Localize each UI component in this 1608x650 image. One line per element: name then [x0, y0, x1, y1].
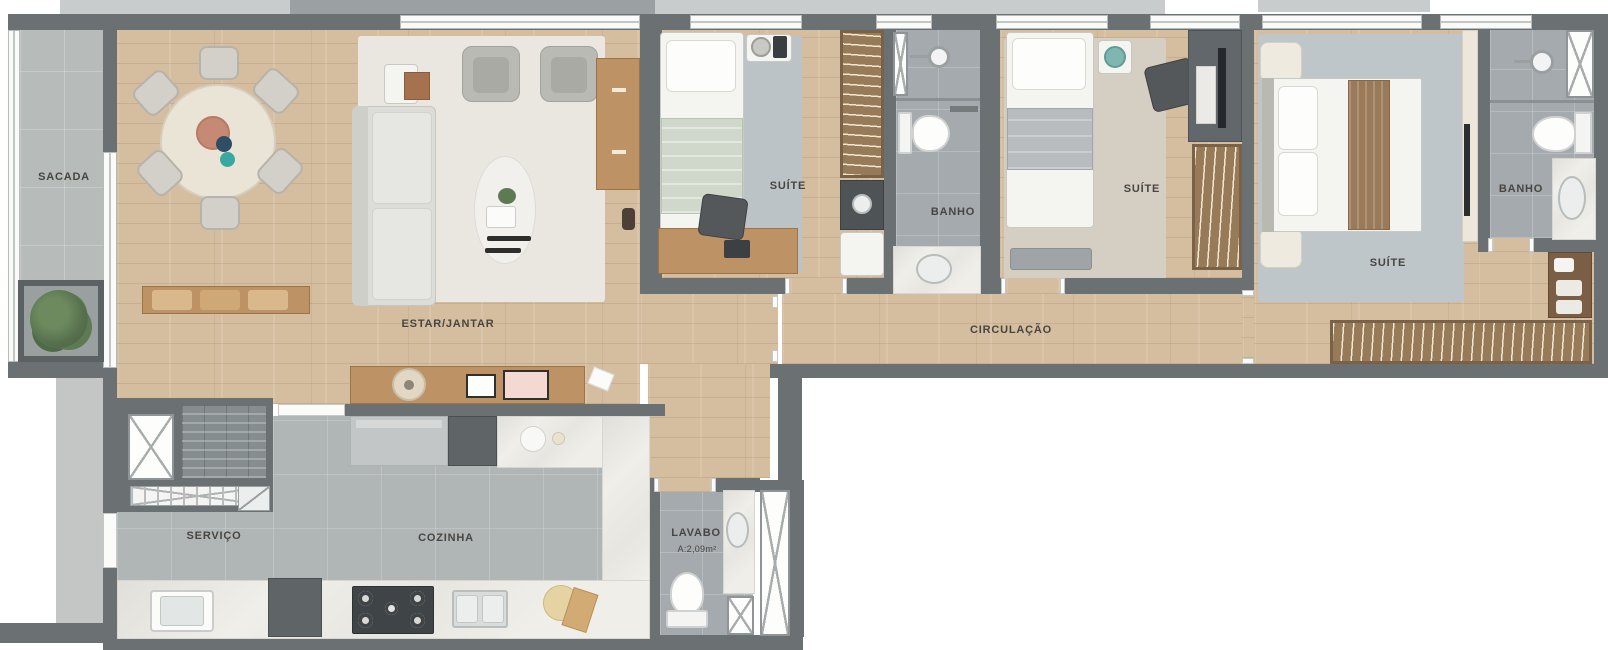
dining-chair: [200, 196, 240, 230]
wall-kitchen-top: [345, 404, 665, 416]
coffee-items: [1556, 300, 1582, 314]
toilet-lavabo-bowl: [670, 572, 704, 614]
bench-cushion: [200, 290, 240, 310]
balcony-glass-door: [103, 152, 117, 368]
bench-cushion: [152, 290, 192, 310]
coffee-table-remote: [487, 236, 531, 241]
door-post: [1001, 278, 1006, 294]
desk-suite2: [1196, 66, 1216, 124]
door-post: [1488, 238, 1493, 252]
nightstand-master: [1260, 228, 1302, 268]
coffee-items: [1554, 258, 1574, 272]
lamp-teal-suite2: [1104, 46, 1126, 68]
wall-duct-cap: [760, 480, 790, 490]
wall-bottom-left-stub: [0, 623, 103, 643]
door-post: [772, 296, 778, 308]
bed-suite2-blanket: [1007, 108, 1093, 170]
dining-decor-blue: [216, 136, 232, 152]
shower-head-banho2: [1530, 50, 1554, 74]
shower-arm-banho1: [910, 55, 930, 58]
door-gap-banho2: [1492, 238, 1530, 252]
exterior-band: [60, 0, 290, 14]
drying-rack: [238, 486, 270, 511]
toilet-banho2-tank: [1574, 112, 1592, 154]
door-gap-lavabo: [658, 478, 712, 492]
shower-door-banho2: [1566, 30, 1594, 98]
door-post: [772, 350, 778, 362]
wall-master-banho2: [1478, 14, 1490, 238]
door-gap-suite1: [790, 278, 842, 294]
bed-master-pillow: [1278, 152, 1318, 216]
cabinet-suite1: [840, 232, 884, 276]
door-post: [1242, 358, 1254, 364]
burner: [410, 613, 425, 628]
floor-plan: SACADA ESTAR/JANTAR SERVIÇO COZINHA LAVA…: [0, 0, 1608, 650]
vanity-basin-banho2: [1558, 176, 1586, 220]
common-corridor-strip: [56, 378, 104, 625]
room-label-estar-jantar: ESTAR/JANTAR: [402, 318, 495, 330]
door-post: [785, 278, 790, 294]
room-label-banho-master: BANHO: [1499, 183, 1543, 195]
wall-balcony-top: [8, 14, 103, 30]
window-suite2-desk: [1150, 15, 1240, 29]
wall-balcony-living-a: [103, 30, 117, 152]
plant: [30, 290, 88, 348]
tv-master: [1464, 124, 1470, 216]
core-textured-wall: [182, 406, 266, 478]
wall-servico-left-b: [103, 568, 117, 635]
burner: [358, 613, 373, 628]
bed-master-runner: [1348, 80, 1390, 230]
door-post: [842, 278, 847, 294]
window-master: [1262, 15, 1422, 29]
sofa-back: [352, 106, 368, 306]
shower-head-banho1: [928, 46, 950, 68]
exterior-band: [1258, 0, 1430, 12]
room-label-circulacao: CIRCULAÇÃO: [970, 324, 1052, 336]
coffee-table-remote: [485, 248, 521, 253]
toilet-lavabo-tank: [666, 610, 708, 628]
lavabo-basin: [726, 512, 749, 548]
wall-hall-right: [778, 378, 802, 490]
wall-duct-right: [790, 480, 804, 637]
console-tray-center: [404, 380, 414, 390]
door-post: [1242, 290, 1254, 296]
kitchen-door-opening: [278, 404, 345, 416]
picture-frame-small: [466, 374, 496, 398]
room-label-suite1: SUÍTE: [770, 180, 806, 192]
room-area-lavabo: A:2,09m²: [678, 544, 717, 554]
shower-divider-banho1: [896, 98, 980, 101]
burner: [410, 591, 425, 606]
laptop-suite1: [724, 240, 750, 258]
towel-shelf-banho1: [950, 106, 978, 112]
shower-divider-banho2: [1490, 100, 1594, 103]
coffee-table-tray: [486, 206, 516, 228]
bed-suite2-bench: [1010, 248, 1092, 270]
master-entry-floor: [1242, 296, 1254, 358]
room-label-banho1: BANHO: [931, 206, 975, 218]
bed-master-pillow: [1278, 86, 1318, 150]
sofa-cushion: [372, 208, 432, 300]
door-post: [1529, 238, 1534, 252]
dining-chair: [199, 46, 239, 80]
door-post: [711, 478, 716, 492]
coffee-table-plant: [498, 188, 516, 204]
tv-suite2: [1218, 48, 1226, 128]
duct-shaft: [760, 490, 790, 636]
room-label-suite-master: SUÍTE: [1370, 257, 1406, 269]
dining-decor-teal: [220, 152, 235, 167]
sink-basin-left: [456, 595, 478, 623]
room-label-suite2: SUÍTE: [1124, 183, 1160, 195]
hall-floor-lower: [648, 364, 770, 478]
wall-suite2-master: [1242, 14, 1254, 296]
armchair-cushion: [473, 57, 509, 93]
door-post: [654, 478, 659, 492]
room-label-cozinha: COZINHA: [418, 532, 474, 544]
burner: [385, 602, 398, 615]
picture-frame-large: [503, 370, 549, 400]
wall-banho1-suite2: [980, 14, 1000, 294]
window-banho2: [1440, 15, 1532, 29]
toilet-banho2-bowl: [1532, 116, 1576, 152]
bed-master-headboard: [1262, 78, 1274, 232]
exterior-band: [290, 0, 655, 14]
counter-cup: [552, 432, 565, 445]
sofa-cushion: [372, 112, 432, 204]
wardrobe-master: [1330, 320, 1592, 364]
armchair-cushion: [551, 57, 587, 93]
room-label-sacada: SACADA: [38, 171, 90, 183]
window-suite2: [996, 15, 1108, 29]
fan: [751, 37, 771, 57]
window-living: [400, 15, 640, 29]
nightstand-master: [1260, 42, 1302, 82]
bed-suite1-pillow: [666, 40, 736, 92]
wardrobe-suite2: [1192, 144, 1242, 270]
laundry-sink-basin: [160, 596, 204, 626]
speaker: [773, 36, 787, 58]
door-post: [1060, 278, 1065, 294]
window-banho1: [876, 15, 932, 29]
window-suite1: [690, 15, 802, 29]
vanity-basin-banho1: [916, 254, 952, 284]
counter-top-right: [497, 416, 604, 468]
oven-column: [448, 416, 497, 466]
wall-right: [1594, 14, 1608, 378]
shaft-small: [727, 596, 754, 635]
toilet-banho1-bowl: [912, 115, 950, 152]
servico-door: [103, 513, 117, 568]
shoes: [622, 208, 635, 230]
hall-floor: [640, 294, 778, 364]
bed-suite2-pillow: [1012, 38, 1086, 90]
shower-arm-banho2: [1514, 60, 1532, 63]
wall-banho2-bottom-b: [1530, 238, 1594, 252]
wall-servico-left-a: [103, 378, 117, 513]
shower-door-banho1: [893, 32, 908, 96]
room-label-lavabo: LAVABO: [671, 527, 721, 539]
sideboard-handle: [612, 88, 626, 92]
door-gap-suite2: [1006, 278, 1060, 294]
wall-bottom-right-wing: [770, 364, 1608, 378]
sink-basin-right: [482, 595, 504, 623]
burner: [358, 591, 373, 606]
exterior-band: [655, 0, 1165, 14]
wall-balcony-bottom: [8, 362, 117, 378]
wardrobe-suite1: [840, 30, 884, 178]
kitchen-upper-shelf: [356, 420, 442, 428]
coffee-items: [1556, 280, 1582, 296]
room-label-servico: SERVIÇO: [187, 530, 242, 542]
minibar-sink: [852, 194, 872, 214]
sideboard-handle: [612, 150, 626, 154]
desk-chair-suite1: [697, 193, 748, 241]
side-table-books: [404, 72, 430, 100]
counter-plates: [520, 426, 546, 452]
washing-machine: [268, 578, 322, 637]
elevator-shaft: [128, 414, 174, 480]
bench-cushion: [248, 290, 288, 310]
sideboard-right: [596, 58, 640, 190]
toilet-banho1-tank: [898, 112, 912, 154]
